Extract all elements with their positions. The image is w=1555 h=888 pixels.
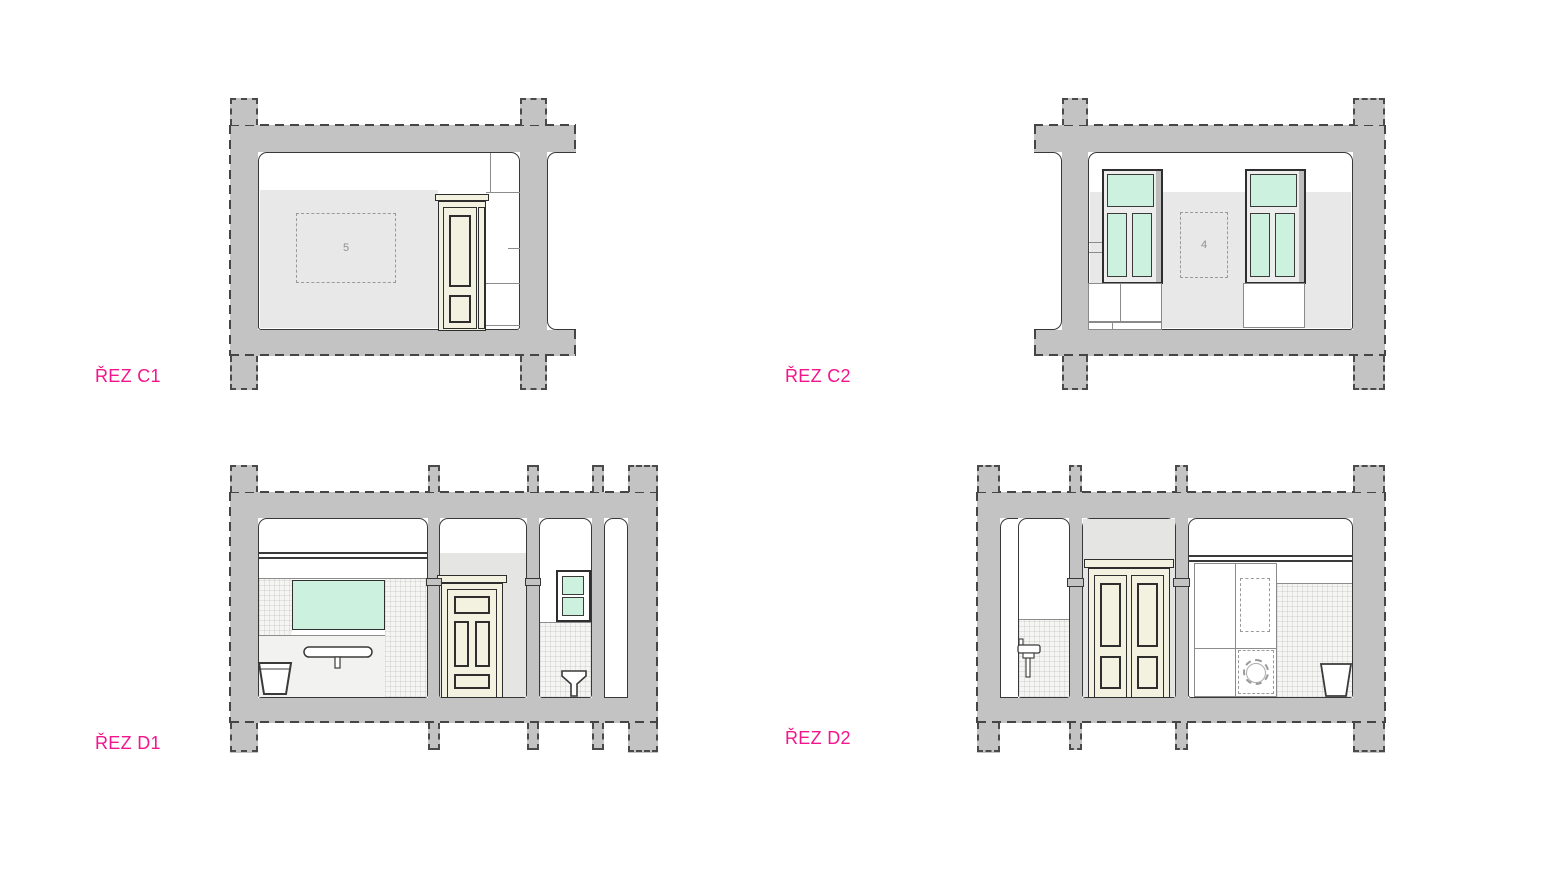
post-capital (525, 578, 541, 586)
wall-stub (230, 723, 258, 752)
slab-end-dashed-line (574, 125, 576, 152)
window-frame-shadow (1299, 171, 1304, 282)
cabinet-line (486, 283, 520, 284)
wall-stub (1175, 723, 1188, 750)
wall-stub (1062, 98, 1088, 125)
door-panel (475, 621, 490, 667)
furniture-dashed-outline: 4 (1180, 212, 1228, 278)
wall-stub (977, 723, 1000, 752)
wall-bracket-line (1089, 242, 1103, 243)
door-panel (454, 674, 490, 689)
door-panel (1100, 583, 1121, 647)
floor-slab (1034, 330, 1385, 356)
toilet (1318, 662, 1354, 698)
wall-stub (1175, 465, 1188, 492)
wall-stub (1069, 723, 1082, 750)
washbasin (303, 646, 373, 670)
furniture-dashed-outline: 5 (296, 213, 396, 283)
wall-cut-dashed-edge (229, 492, 231, 723)
slab-pocket (1034, 152, 1062, 330)
mirror (292, 580, 385, 630)
door-panel (1137, 656, 1158, 689)
wall-sink (1017, 638, 1043, 678)
floor-slab (977, 698, 1385, 723)
tiled-wall (259, 579, 292, 636)
wall-channel (1000, 518, 1018, 698)
urinal (560, 670, 588, 698)
window-apron (1243, 283, 1305, 328)
window-pane (562, 576, 584, 595)
drawing-sheet: 5 ŘEZ C1 (0, 0, 1555, 888)
wall-stub (1353, 98, 1385, 125)
cabinet-line (486, 192, 520, 193)
floor-slab (230, 698, 658, 723)
wall-stub (1353, 356, 1385, 390)
plinth-line (1112, 322, 1113, 330)
door-architrave (1084, 559, 1174, 568)
door-panel (449, 215, 471, 287)
wall-stub (527, 723, 539, 750)
wall-stub (230, 356, 258, 390)
wall-bracket-line (1089, 252, 1103, 253)
ceiling-slab (230, 492, 658, 518)
window-transom-pane (1107, 174, 1154, 207)
ceiling-slab (230, 125, 576, 152)
window-pane (562, 597, 584, 616)
window-casement-pane (1250, 213, 1270, 277)
door-panel (454, 596, 490, 614)
door-panel (1100, 656, 1121, 689)
cabinet-line (1235, 563, 1236, 697)
wall-stub (1069, 465, 1082, 492)
appliance-dashed-outline (1240, 578, 1270, 632)
wall-stub (1353, 465, 1385, 492)
floor-slab (230, 330, 576, 356)
wall-cut-dashed-edge (656, 492, 658, 723)
room-number: 4 (1201, 239, 1207, 251)
door-panel (454, 621, 469, 667)
wall-stub (230, 465, 258, 492)
wall-stub (592, 723, 604, 750)
slab-end-dashed-line (574, 330, 576, 356)
wall-cut-dashed-edge (1384, 125, 1386, 356)
door-panel (449, 295, 471, 323)
cabinet-line (1194, 648, 1277, 649)
door-panel (1137, 583, 1158, 647)
post-capital (1067, 578, 1084, 587)
wall-stub (230, 98, 258, 125)
section-label-c2: ŘEZ C2 (785, 366, 851, 387)
wall-stub (1062, 356, 1088, 390)
wall-stub (520, 98, 547, 125)
wall-cut-dashed-edge (229, 125, 231, 356)
wall-stub (977, 465, 1000, 492)
wall-cut-dashed-edge (1384, 492, 1386, 723)
wall-stub (628, 723, 658, 752)
room-number: 5 (343, 242, 349, 254)
window-frame-shadow (1156, 171, 1161, 282)
section-label-d2: ŘEZ D2 (785, 728, 851, 749)
wall-stub (428, 723, 440, 750)
window-casement-pane (1107, 213, 1127, 277)
window-apron-plinth (1088, 322, 1162, 330)
shaft-outline (604, 518, 628, 698)
ceiling-slab (977, 492, 1385, 518)
wall-stub (592, 465, 604, 492)
wall-cut-dashed-edge (976, 492, 978, 723)
washing-machine-door (1246, 663, 1266, 683)
cabinet-line (486, 325, 520, 326)
door-side-leaf (478, 207, 485, 329)
tiled-wall (385, 579, 427, 697)
slab-pocket (547, 152, 576, 330)
wall-stub (628, 465, 658, 492)
dropped-ceiling (259, 552, 427, 559)
section-label-d1: ŘEZ D1 (95, 733, 161, 754)
slab-end-dashed-line (1034, 125, 1036, 152)
cabinet-line (490, 153, 491, 192)
ceiling-slab (1034, 125, 1385, 152)
apron-line (1120, 283, 1121, 322)
window-apron (1088, 283, 1162, 322)
slab-end-dashed-line (1034, 330, 1036, 356)
cabinet-shelf-line (508, 248, 520, 249)
post-capital (426, 578, 442, 586)
section-label-c1: ŘEZ C1 (95, 366, 161, 387)
door-architrave (437, 575, 507, 583)
dropped-ceiling (1189, 555, 1352, 562)
door-architrave (435, 194, 489, 201)
wall-stub (428, 465, 440, 492)
wall-stub (1353, 723, 1385, 752)
window-casement-pane (1132, 213, 1152, 277)
toilet (256, 661, 294, 696)
window-transom-pane (1250, 174, 1297, 207)
post-capital (1173, 578, 1190, 587)
wall-stub (527, 465, 539, 492)
wall-stub (520, 356, 547, 390)
window-casement-pane (1275, 213, 1295, 277)
